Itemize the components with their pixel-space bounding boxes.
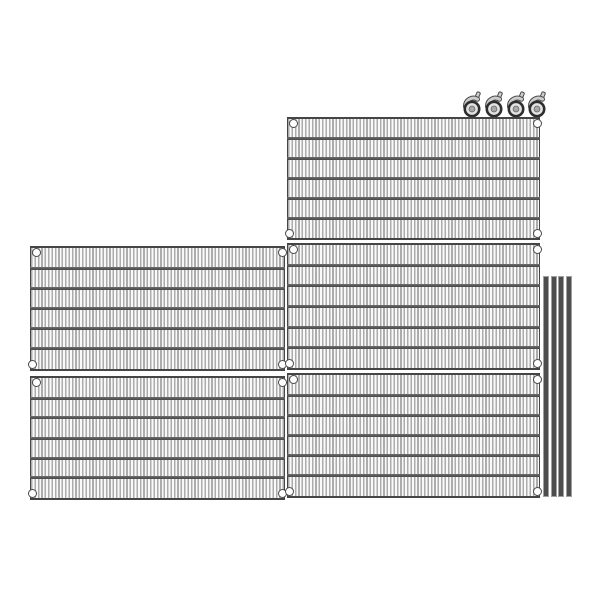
corner-collar: [32, 248, 41, 257]
wire-shelf: [287, 243, 540, 370]
corner-collar: [533, 119, 542, 128]
caster-hub: [491, 106, 497, 112]
corner-collar: [533, 245, 542, 254]
support-pole: [543, 276, 549, 497]
shelf-crossbar: [287, 414, 540, 417]
shelf-crossbar: [287, 474, 540, 477]
corner-collar: [28, 360, 37, 369]
corner-collar: [289, 245, 298, 254]
shelf-crossbar: [30, 416, 285, 419]
shelf-crossbar: [30, 397, 285, 400]
corner-collar: [278, 378, 287, 387]
shelf-crossbar: [287, 177, 540, 180]
shelf-crossbar: [287, 305, 540, 308]
shelf-crossbar: [287, 454, 540, 457]
shelf-crossbar: [30, 267, 285, 270]
swivel-caster-icon: [526, 91, 550, 118]
caster-hub: [513, 106, 519, 112]
shelf-crossbar: [30, 437, 285, 440]
shelf-crossbar: [287, 217, 540, 220]
shelf-crossbar: [287, 197, 540, 200]
corner-collar: [285, 229, 294, 238]
corner-collar: [285, 359, 294, 368]
shelf-crossbar: [287, 346, 540, 349]
corner-collar: [32, 378, 41, 387]
shelf-crossbar: [287, 157, 540, 160]
wire-shelf: [287, 373, 540, 498]
corner-collar: [289, 119, 298, 128]
wire-shelf: [30, 246, 285, 371]
product-image: [0, 0, 600, 600]
shelf-crossbar: [287, 434, 540, 437]
support-pole: [551, 276, 557, 497]
corner-collar: [289, 375, 298, 384]
caster-hub: [469, 106, 475, 112]
shelf-crossbar: [287, 137, 540, 140]
corner-collar: [278, 248, 287, 257]
shelf-crossbar: [30, 347, 285, 350]
shelf-crossbar: [30, 327, 285, 330]
support-pole: [558, 276, 564, 497]
wire-shelf: [30, 376, 285, 500]
shelf-crossbar: [30, 307, 285, 310]
corner-collar: [28, 489, 37, 498]
shelf-crossbar: [287, 284, 540, 287]
shelf-crossbar: [30, 457, 285, 460]
swivel-caster-icon: [483, 91, 507, 118]
shelf-crossbar: [30, 287, 285, 290]
support-pole: [566, 276, 572, 497]
corner-collar: [533, 359, 542, 368]
corner-collar: [533, 375, 542, 384]
corner-collar: [285, 487, 294, 496]
corner-collar: [533, 229, 542, 238]
wire-shelf: [287, 117, 540, 240]
shelf-crossbar: [30, 476, 285, 479]
shelf-crossbar: [287, 326, 540, 329]
shelf-crossbar: [287, 264, 540, 267]
caster-hub: [534, 106, 540, 112]
shelf-crossbar: [287, 394, 540, 397]
corner-collar: [533, 487, 542, 496]
swivel-caster-icon: [461, 91, 485, 118]
